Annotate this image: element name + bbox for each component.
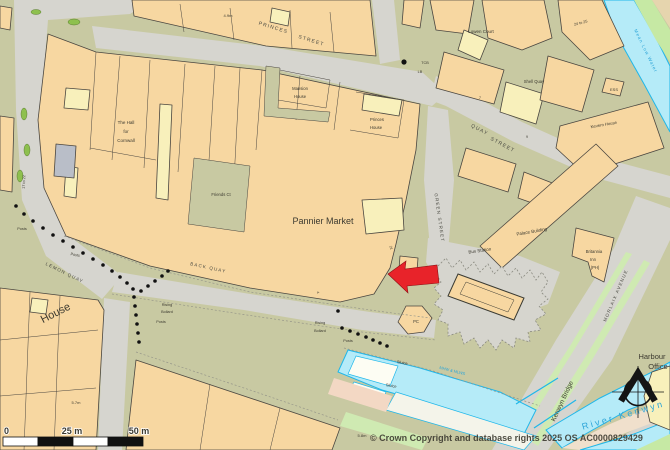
label-mansion-house: Mansion — [292, 86, 308, 91]
label-ess: ESS — [610, 87, 618, 92]
label-harbour-office: Office — [648, 362, 667, 371]
label-parcel-number: 7 — [479, 96, 481, 100]
label-hall-for-cornwall: The Hall — [118, 120, 135, 125]
spot-height: 4.9m — [224, 13, 234, 18]
grey-building — [54, 144, 76, 178]
label-parcel-number: 9 — [526, 135, 528, 139]
label-britannia-inn: Britannia — [586, 249, 603, 254]
os-map-canvas: PRINCES STREET QUAY STREET GREEN STREET … — [0, 0, 670, 450]
label-mansion-house: House — [294, 94, 307, 99]
label-posts: Posts — [17, 227, 27, 231]
spot-height: 5.8m — [358, 433, 368, 438]
label-rising-bollard: Bollard — [314, 329, 326, 333]
label-posts: Posts — [156, 320, 166, 324]
scale-mid: 25 m — [62, 426, 83, 436]
tcb-dot — [401, 59, 406, 64]
label-pannier-market: Pannier Market — [292, 216, 354, 226]
scale-zero: 0 — [4, 426, 9, 436]
label-princes-house: House — [370, 125, 383, 130]
label-rising-bollard: Bollard — [161, 310, 173, 314]
label-pc: PC — [413, 319, 419, 324]
label-posts: Posts — [343, 339, 353, 343]
label-tcb: TCB — [421, 61, 429, 65]
copyright-notice: © Crown Copyright and database rights 20… — [370, 433, 643, 443]
label-hall-for-cornwall: Cornwall — [117, 138, 135, 143]
label-princes-house: Princes — [370, 117, 384, 122]
label-friends-ct: Friends Ct — [211, 192, 231, 197]
label-britannia-inn: (PH) — [591, 265, 600, 270]
label-lb: LB — [418, 70, 423, 74]
label-shell-quay: Shell Quay — [524, 79, 545, 84]
label-17-to-22: 17 to 22 — [22, 175, 26, 189]
map-svg: PRINCES STREET QUAY STREET GREEN STREET … — [0, 0, 670, 450]
label-hall-for-cornwall: for — [123, 129, 129, 134]
label-harbour-office: Harbour — [638, 352, 666, 361]
label-britannia-inn: Inn — [590, 257, 596, 262]
label-rising-bollard: Rising — [162, 303, 173, 307]
label-rising-bollard: Rising — [315, 321, 326, 325]
scale-end: 50 m — [129, 426, 150, 436]
spot-height: 5.7m — [72, 400, 82, 405]
label-lowen-court: Lowen Court — [468, 29, 494, 34]
